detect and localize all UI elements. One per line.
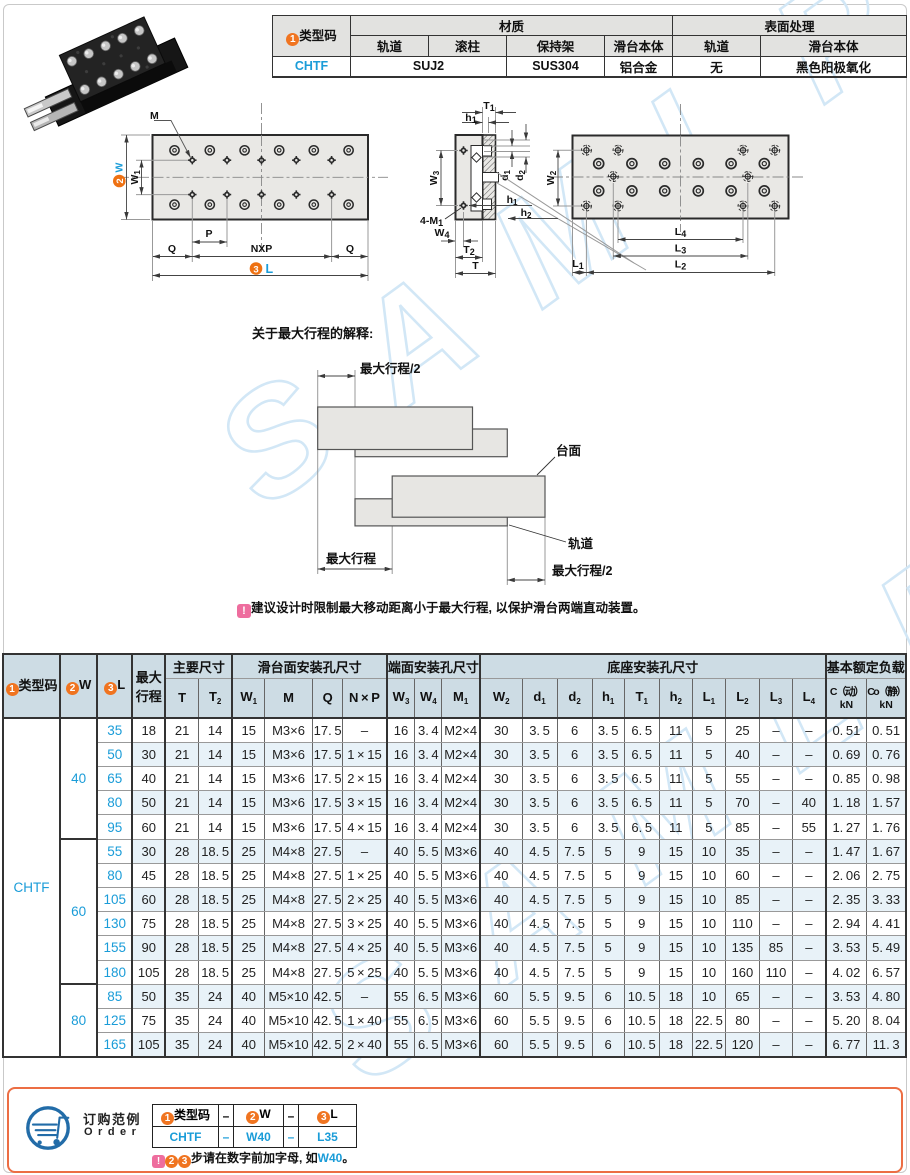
svg-text:Q: Q [168, 243, 176, 255]
svg-text:T2: T2 [463, 244, 474, 257]
svg-text:2: 2 [115, 178, 126, 183]
svg-text:T1: T1 [483, 100, 494, 113]
svg-text:Q: Q [346, 243, 354, 255]
svg-text:最大行程: 最大行程 [326, 551, 377, 566]
svg-text:T: T [472, 260, 479, 272]
svg-text:L3: L3 [675, 243, 686, 256]
svg-text:W4: W4 [435, 227, 450, 240]
svg-text:3: 3 [253, 264, 258, 275]
svg-text:轨道: 轨道 [568, 536, 594, 551]
svg-text:最大行程/2: 最大行程/2 [360, 361, 420, 376]
svg-text:L1: L1 [572, 258, 583, 271]
svg-text:最大行程/2: 最大行程/2 [552, 563, 612, 578]
svg-text:W: W [114, 163, 126, 173]
svg-text:W1: W1 [129, 170, 142, 185]
svg-text:台面: 台面 [556, 443, 582, 458]
svg-text:P: P [205, 228, 212, 240]
svg-text:W3: W3 [428, 170, 441, 185]
svg-text:NXP: NXP [251, 243, 273, 255]
svg-text:L4: L4 [675, 226, 686, 239]
svg-text:h2: h2 [521, 207, 532, 220]
svg-text:h1: h1 [507, 194, 518, 207]
svg-text:L2: L2 [675, 259, 686, 272]
svg-text:d2: d2 [514, 169, 527, 180]
svg-text:L: L [266, 262, 274, 276]
svg-text:W2: W2 [545, 170, 558, 185]
svg-text:h1: h1 [465, 112, 476, 125]
